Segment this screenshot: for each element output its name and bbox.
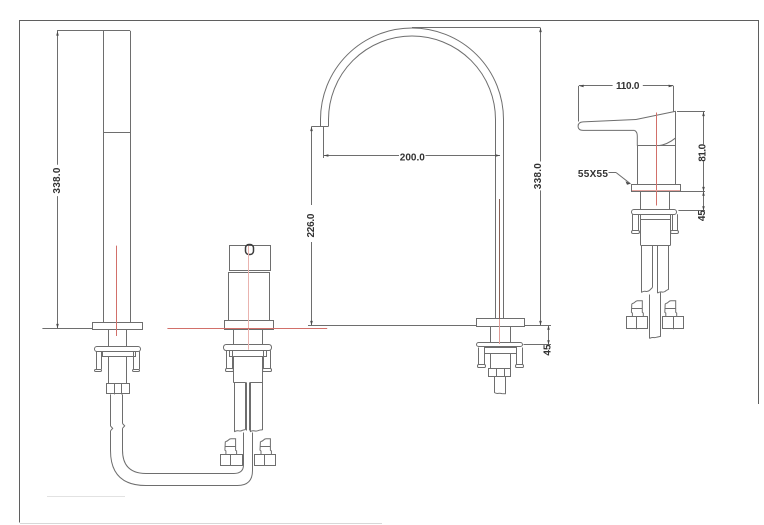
svg-text:226.0: 226.0: [306, 213, 317, 237]
svg-text:45: 45: [543, 344, 554, 356]
svg-text:200.0: 200.0: [400, 153, 425, 164]
svg-text:45: 45: [697, 210, 708, 222]
svg-text:55X55: 55X55: [578, 169, 608, 180]
svg-text:338.0: 338.0: [52, 167, 63, 193]
svg-text:110.0: 110.0: [616, 81, 640, 92]
svg-text:81.0: 81.0: [698, 143, 709, 161]
svg-text:338.0: 338.0: [533, 163, 544, 189]
